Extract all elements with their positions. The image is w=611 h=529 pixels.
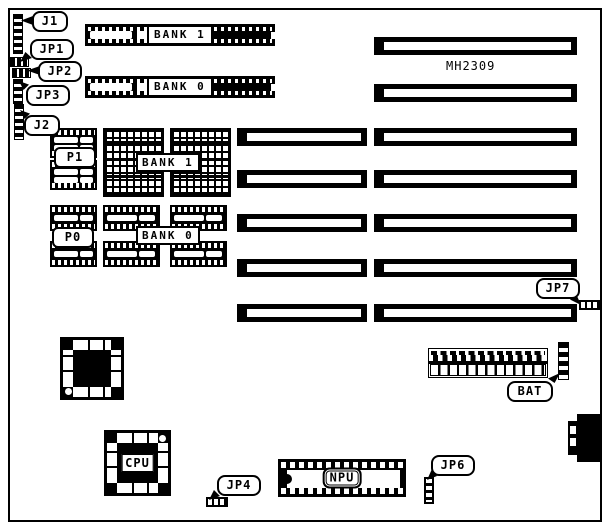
slot-opening	[247, 175, 361, 183]
npu-pins-bottom	[281, 488, 403, 494]
callout-jp3-label: JP3	[36, 88, 61, 102]
dip-window	[80, 251, 93, 257]
plcc-ticks-right	[111, 352, 121, 385]
keyboard-connector	[577, 414, 602, 462]
dip-window	[107, 251, 137, 257]
callout-jp4-label: JP4	[227, 478, 252, 492]
dip-pins	[105, 207, 158, 212]
p0-chip-label: P0	[52, 227, 94, 248]
dip-pins	[105, 260, 158, 265]
dip-window	[54, 251, 78, 257]
power-connector	[428, 348, 548, 378]
callout-jp6: JP6	[431, 455, 475, 476]
battery	[558, 342, 569, 380]
cpu-corner	[107, 433, 117, 443]
callout-jp2: JP2	[38, 61, 82, 82]
p0-label-text: P0	[65, 230, 81, 244]
isa-slot-short	[237, 304, 367, 322]
dip-pins	[52, 207, 95, 212]
simm-slot-opening	[90, 83, 132, 91]
plcc-corner	[111, 387, 121, 397]
jp4-jumper	[206, 497, 228, 507]
dip-window	[54, 215, 78, 221]
slot-opening	[384, 309, 571, 317]
simm-socket-bank1: BANK 1	[85, 24, 275, 46]
callout-j1: J1	[32, 11, 68, 32]
callout-j1-label: J1	[42, 14, 58, 28]
simm-bank1-label: BANK 1	[147, 25, 213, 45]
isa-slot-long	[374, 304, 577, 322]
callout-jp7-label: JP7	[546, 281, 571, 295]
isa-slot-short	[237, 128, 367, 146]
power-socket-cells	[431, 365, 545, 375]
slot-opening	[384, 89, 571, 97]
dram-bank0-label: BANK 0	[136, 226, 200, 245]
plcc-ticks-bottom	[75, 387, 109, 397]
cpu-chip: CPU	[104, 430, 171, 496]
pin1-indicator	[158, 434, 167, 443]
dip-pins	[52, 260, 95, 265]
plcc-chip	[60, 337, 124, 400]
plcc-ticks-top	[75, 340, 109, 350]
npu-key-notch	[282, 474, 292, 484]
jp2-jumper	[12, 68, 31, 78]
slot-opening	[384, 133, 571, 141]
dram-bank1-label: BANK 1	[136, 153, 200, 172]
callout-jp1-label: JP1	[40, 42, 65, 56]
cpu-corner	[158, 483, 168, 493]
cpu-label: CPU	[121, 454, 154, 472]
isa-slot-long	[374, 214, 577, 232]
dip-window	[54, 169, 78, 175]
plcc-corner	[111, 340, 121, 350]
board-model-text: MH2309	[446, 59, 495, 73]
npu-label-text: NPU	[326, 471, 359, 486]
slot-opening	[247, 133, 361, 141]
dip-pins	[172, 260, 225, 265]
dip-window	[206, 215, 222, 221]
npu-socket: NPU	[278, 459, 406, 497]
cpu-ticks-top	[119, 433, 156, 443]
simm-end-notch	[271, 84, 275, 91]
dip-window	[80, 215, 93, 221]
slot-opening	[384, 264, 571, 272]
callout-jp2-label: JP2	[48, 64, 73, 78]
cpu-corner	[107, 483, 117, 493]
j2-pin-header	[14, 104, 24, 140]
power-socket-row	[430, 364, 546, 376]
slot-opening	[384, 42, 571, 50]
callout-j2-label: J2	[34, 118, 50, 132]
isa-slot-short	[237, 170, 367, 188]
isa-slot-long	[374, 84, 577, 102]
callout-j2: J2	[24, 115, 60, 136]
pin1-indicator	[64, 387, 73, 396]
isa-slot-long	[374, 37, 577, 55]
slot-opening	[247, 264, 361, 272]
slot-opening	[384, 175, 571, 183]
callout-jp3: JP3	[26, 85, 70, 106]
dip-window	[174, 251, 204, 257]
callout-jp7: JP7	[536, 278, 580, 299]
dip-pins	[52, 183, 95, 188]
dip-window	[139, 251, 155, 257]
dip-window	[107, 215, 137, 221]
keyboard-connector-notch	[570, 438, 576, 446]
callout-jp1: JP1	[30, 39, 74, 60]
callout-bat-label: BAT	[518, 384, 543, 398]
callout-jp4: JP4	[217, 475, 261, 496]
callout-bat: BAT	[507, 381, 553, 402]
isa-slot-long	[374, 259, 577, 277]
plcc-die	[73, 350, 111, 387]
simm-bank0-label: BANK 0	[147, 77, 213, 97]
plcc-ticks-left	[63, 352, 73, 385]
isa-slot-short	[237, 214, 367, 232]
slot-opening	[247, 219, 361, 227]
isa-slot-long	[374, 128, 577, 146]
isa-slot-short	[237, 259, 367, 277]
dip-window	[80, 169, 93, 175]
keyboard-connector-notch	[570, 426, 576, 434]
cpu-ticks-bottom	[119, 483, 156, 493]
p1-label-text: P1	[67, 150, 83, 164]
motherboard-diagram: J1 JP1 JP2 JP3 J2 BANK 1 BANK 0 BANK 1 B…	[0, 0, 611, 529]
j1-pin-header	[13, 14, 23, 54]
npu-label: NPU	[323, 468, 362, 489]
dip-window	[174, 215, 204, 221]
cpu-ticks-right	[158, 445, 168, 481]
dip-pins	[172, 207, 225, 212]
jp7-jumper	[579, 300, 600, 310]
dip-window	[80, 177, 93, 183]
callout-jp6-label: JP6	[441, 458, 466, 472]
dip-window	[54, 137, 78, 143]
dip-window	[54, 177, 78, 183]
simm-socket-bank0: BANK 0	[85, 76, 275, 98]
dip-window	[139, 215, 155, 221]
slot-opening	[384, 219, 571, 227]
slot-opening	[247, 309, 361, 317]
isa-slot-long	[374, 170, 577, 188]
simm-end-notch	[271, 32, 275, 39]
plcc-corner	[63, 340, 73, 350]
cpu-ticks-left	[107, 445, 117, 481]
dip-window	[206, 251, 222, 257]
simm-slot-opening	[90, 31, 132, 39]
p1-chip-label: P1	[54, 147, 96, 168]
jp6-jumper	[424, 477, 434, 504]
dip-window	[80, 137, 93, 143]
